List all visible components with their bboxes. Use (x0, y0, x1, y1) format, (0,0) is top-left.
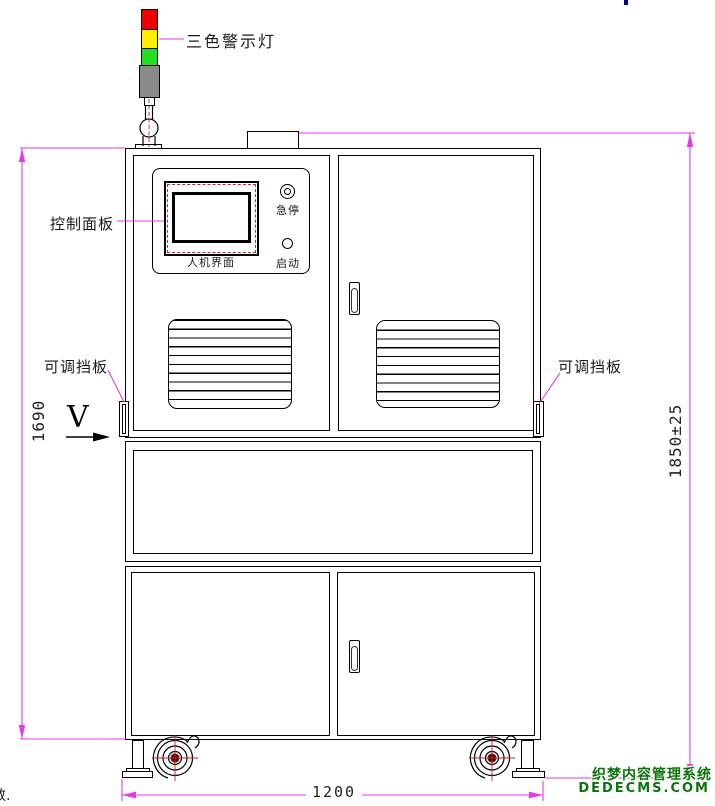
linework-overlay (0, 0, 715, 806)
technical-drawing-canvas: 三色警示灯 控制面板 人机界面 急停 启动 可调挡板 可调挡板 V 1690 1… (0, 0, 715, 806)
baffle-left-leader (108, 370, 124, 402)
control-panel-label: 控制面板 (50, 213, 114, 234)
baffle-right-label: 可调挡板 (558, 356, 622, 377)
corner-text-fragment: 数. (0, 785, 10, 805)
view-direction-label: V (67, 403, 89, 433)
caster-left (152, 735, 199, 781)
caster-right (469, 735, 516, 781)
hmi-screen-label: 人机界面 (187, 254, 235, 270)
start-button-label: 启动 (276, 255, 300, 271)
warning-light-label: 三色警示灯 (186, 28, 276, 52)
baffle-left-label: 可调挡板 (44, 356, 108, 377)
dimension-1690-text: 1690 (29, 376, 47, 466)
warning-light-stem (140, 99, 158, 147)
emergency-stop-label: 急停 (276, 202, 300, 218)
dimension-1850-text: 1850±25 (666, 386, 684, 496)
dimension-1200-text: 1200 (306, 783, 362, 799)
baffle-right-leader (539, 373, 560, 404)
watermark-line2: DEDECMS.COM (578, 781, 710, 796)
leader-lines (108, 39, 560, 404)
dimension-1850-linework (299, 133, 695, 778)
